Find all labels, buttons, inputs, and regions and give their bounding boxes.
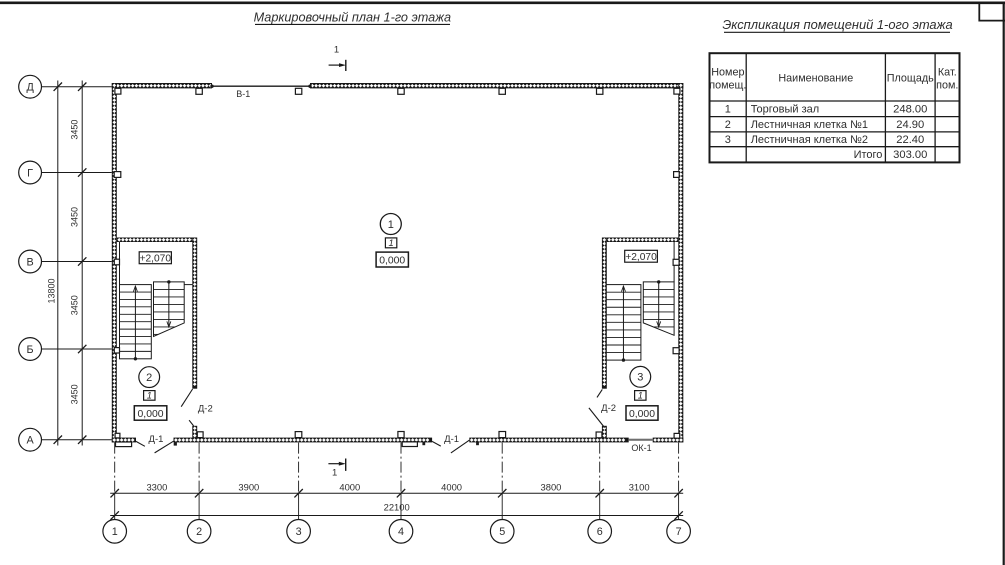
svg-text:3450: 3450: [70, 295, 80, 315]
svg-text:3450: 3450: [70, 384, 80, 404]
svg-text:Лестничная клетка №1: Лестничная клетка №1: [751, 119, 868, 131]
svg-text:4: 4: [398, 526, 404, 538]
svg-text:Лестничная клетка №2: Лестничная клетка №2: [751, 134, 868, 146]
svg-text:Г: Г: [27, 167, 33, 179]
svg-text:0,000: 0,000: [629, 409, 655, 420]
svg-text:4000: 4000: [441, 481, 462, 492]
svg-text:2: 2: [196, 526, 202, 538]
svg-text:Наименование: Наименование: [778, 73, 853, 85]
svg-text:Номер: Номер: [711, 67, 744, 79]
svg-text:3800: 3800: [541, 481, 562, 492]
svg-text:2: 2: [146, 372, 152, 384]
svg-text:3: 3: [296, 526, 302, 538]
svg-text:1: 1: [112, 526, 118, 538]
svg-text:1: 1: [725, 104, 731, 116]
svg-text:ОК-1: ОК-1: [631, 443, 651, 453]
svg-text:1: 1: [147, 391, 152, 401]
svg-text:0,000: 0,000: [138, 409, 164, 420]
svg-text:пом.: пом.: [936, 80, 958, 92]
svg-text:303.00: 303.00: [893, 149, 927, 161]
svg-text:3: 3: [637, 372, 643, 384]
svg-text:Итого: Итого: [854, 149, 883, 161]
svg-text:6: 6: [597, 526, 603, 538]
svg-text:Торговый зал: Торговый зал: [751, 104, 820, 116]
svg-text:3300: 3300: [146, 481, 167, 492]
svg-text:+2,070: +2,070: [625, 252, 657, 263]
svg-text:Д-2: Д-2: [198, 404, 213, 415]
svg-text:Кат.: Кат.: [938, 67, 957, 79]
svg-text:1: 1: [332, 468, 337, 479]
svg-text:Маркировочный план 1-го этажа: Маркировочный план 1-го этажа: [254, 10, 451, 24]
svg-text:Д-2: Д-2: [601, 403, 616, 414]
svg-text:3450: 3450: [70, 120, 80, 140]
svg-text:3900: 3900: [238, 481, 259, 492]
svg-text:3100: 3100: [629, 481, 650, 492]
svg-text:В: В: [26, 256, 33, 268]
svg-text:22100: 22100: [384, 502, 410, 513]
svg-text:Д: Д: [26, 82, 34, 94]
svg-text:+2,070: +2,070: [140, 253, 172, 264]
svg-text:0,000: 0,000: [379, 256, 405, 267]
svg-text:24.90: 24.90: [896, 119, 924, 131]
svg-text:Экспликация помещений 1-ого эт: Экспликация помещений 1-ого этажа: [722, 17, 952, 32]
svg-text:13800: 13800: [47, 278, 57, 303]
svg-text:3: 3: [725, 134, 731, 146]
svg-text:7: 7: [676, 526, 682, 538]
svg-text:Д-1: Д-1: [444, 434, 459, 445]
svg-text:Д-1: Д-1: [149, 434, 164, 445]
svg-text:4000: 4000: [339, 481, 360, 492]
svg-text:3450: 3450: [70, 207, 80, 227]
svg-text:248.00: 248.00: [893, 104, 927, 116]
svg-text:1: 1: [334, 45, 339, 56]
svg-text:А: А: [26, 435, 34, 447]
svg-text:Б: Б: [27, 344, 34, 356]
svg-text:22.40: 22.40: [896, 134, 924, 146]
svg-text:помещ.: помещ.: [709, 80, 746, 92]
svg-text:1: 1: [389, 238, 394, 248]
svg-text:1: 1: [388, 219, 394, 231]
svg-text:Площадь: Площадь: [887, 73, 934, 85]
svg-text:5: 5: [499, 526, 505, 538]
svg-text:В-1: В-1: [236, 89, 250, 99]
svg-text:1: 1: [638, 391, 643, 401]
svg-text:2: 2: [725, 119, 731, 131]
